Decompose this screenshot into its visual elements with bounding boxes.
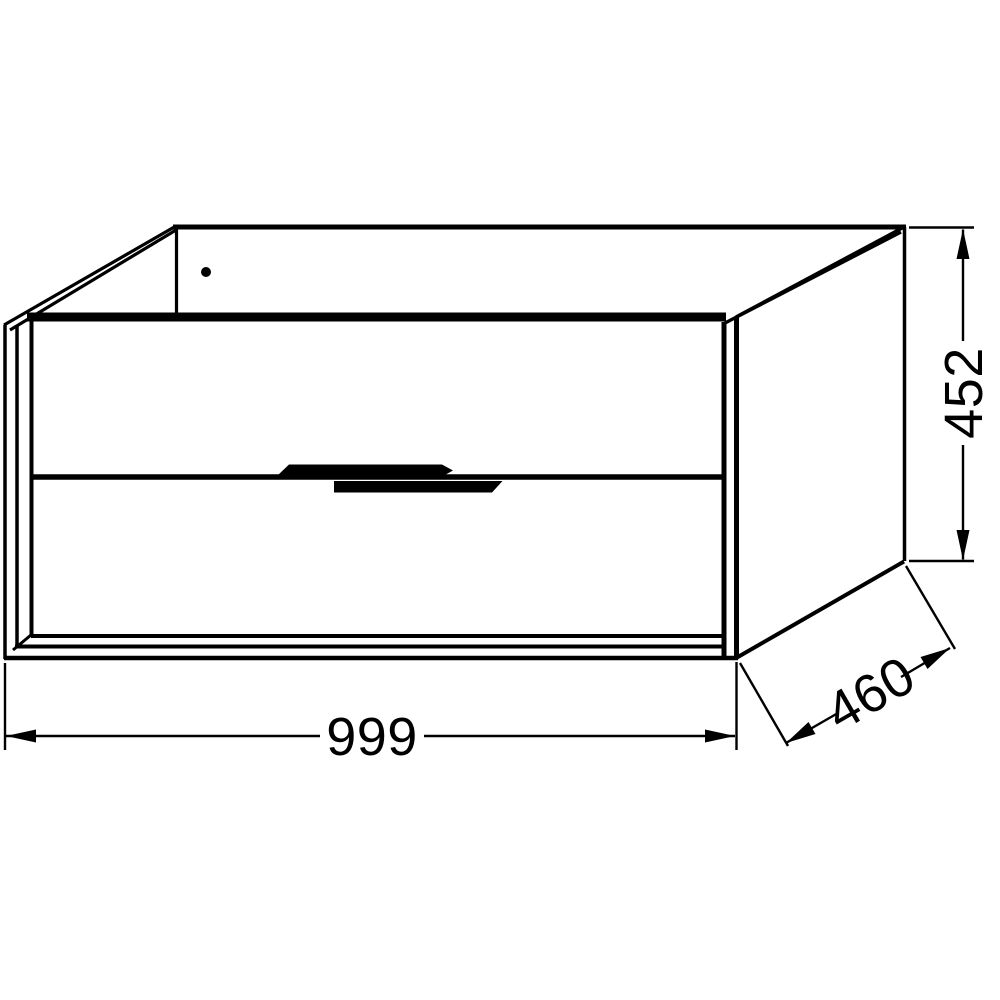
height-arrow-top bbox=[957, 229, 970, 259]
right-panel-top-inner-edge bbox=[725, 232, 901, 323]
dim-height: 452 bbox=[909, 228, 994, 562]
width-arrow-left bbox=[6, 730, 36, 743]
drawing-svg: 999 452 460 bbox=[0, 0, 1000, 1000]
depth-arrow-front bbox=[786, 722, 816, 743]
width-arrow-right bbox=[705, 730, 735, 743]
handle-upper-lip bbox=[277, 465, 453, 477]
left-panel-top-outer-edge bbox=[4, 226, 176, 325]
cabinet-bottom-right-edge bbox=[737, 562, 904, 658]
back-panel-hole bbox=[201, 267, 211, 277]
width-dimension-label: 999 bbox=[326, 707, 418, 767]
technical-drawing-canvas: 999 452 460 bbox=[0, 0, 1000, 1000]
height-dimension-label: 452 bbox=[934, 347, 994, 439]
height-arrow-bottom bbox=[957, 530, 970, 560]
depth-extension-line-front bbox=[740, 663, 788, 746]
dim-width: 999 bbox=[5, 662, 737, 767]
depth-arrow-back bbox=[921, 648, 951, 669]
depth-extension-line-back bbox=[906, 566, 955, 649]
cabinet-outline bbox=[4, 226, 906, 659]
depth-dimension-label: 460 bbox=[816, 645, 925, 743]
handle-lower-lip bbox=[334, 481, 503, 493]
